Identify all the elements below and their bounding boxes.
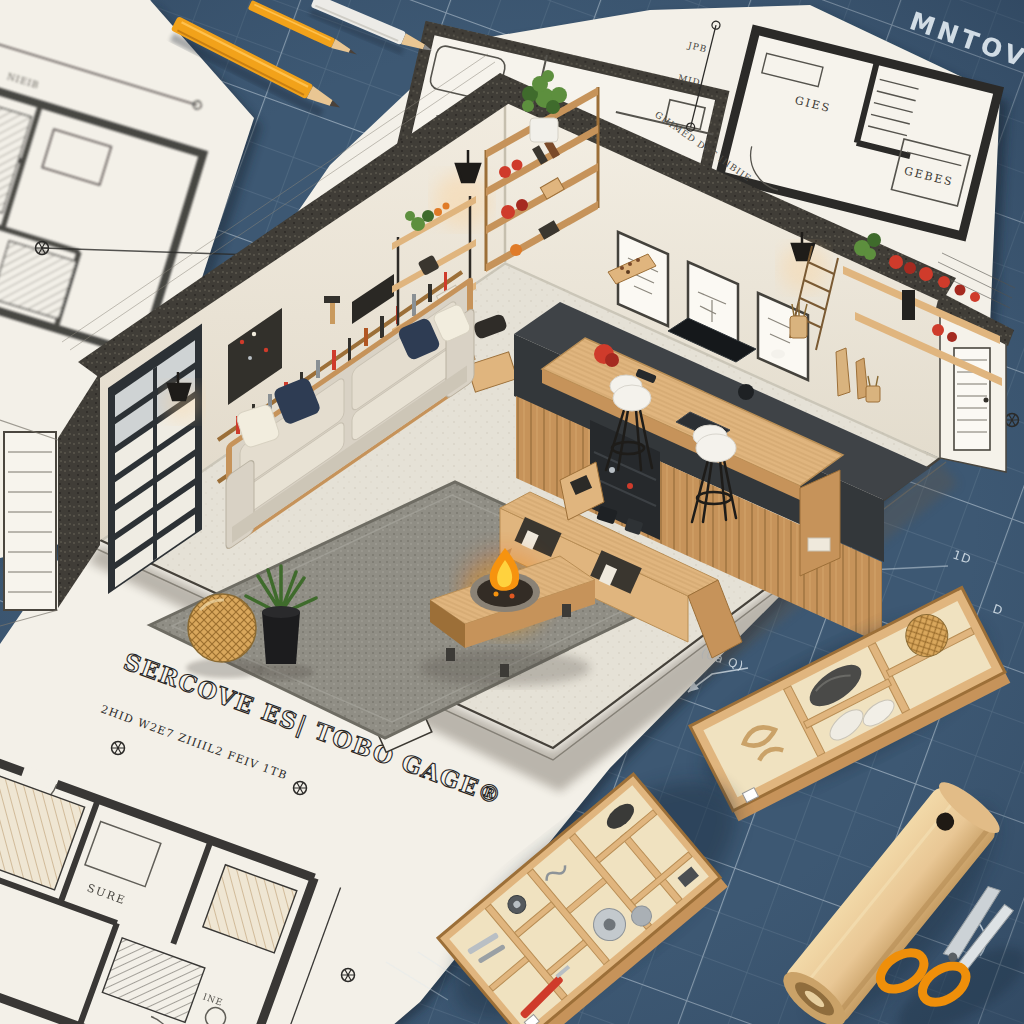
sketched-side-door: [4, 432, 56, 610]
plant-pot-white: [530, 118, 558, 142]
mouse: [771, 350, 785, 359]
headphones: [738, 384, 754, 400]
red-cloth-fold: [605, 353, 619, 367]
leg-shelf-books: [808, 538, 830, 551]
scene-svg: NIEIB GIES GEBES JPB MID GHIMED DYT IIIB…: [0, 0, 1024, 1024]
shelf-bottle: [902, 290, 915, 320]
door-handle: [984, 398, 989, 403]
plant-pot-black: [262, 612, 300, 664]
garage-door-mullion: [153, 366, 157, 561]
illustration-stage: NIEIB GIES GEBES JPB MID GHIMED DYT IIIB…: [0, 0, 1024, 1024]
desk-bar-leg-panel: [800, 470, 840, 576]
